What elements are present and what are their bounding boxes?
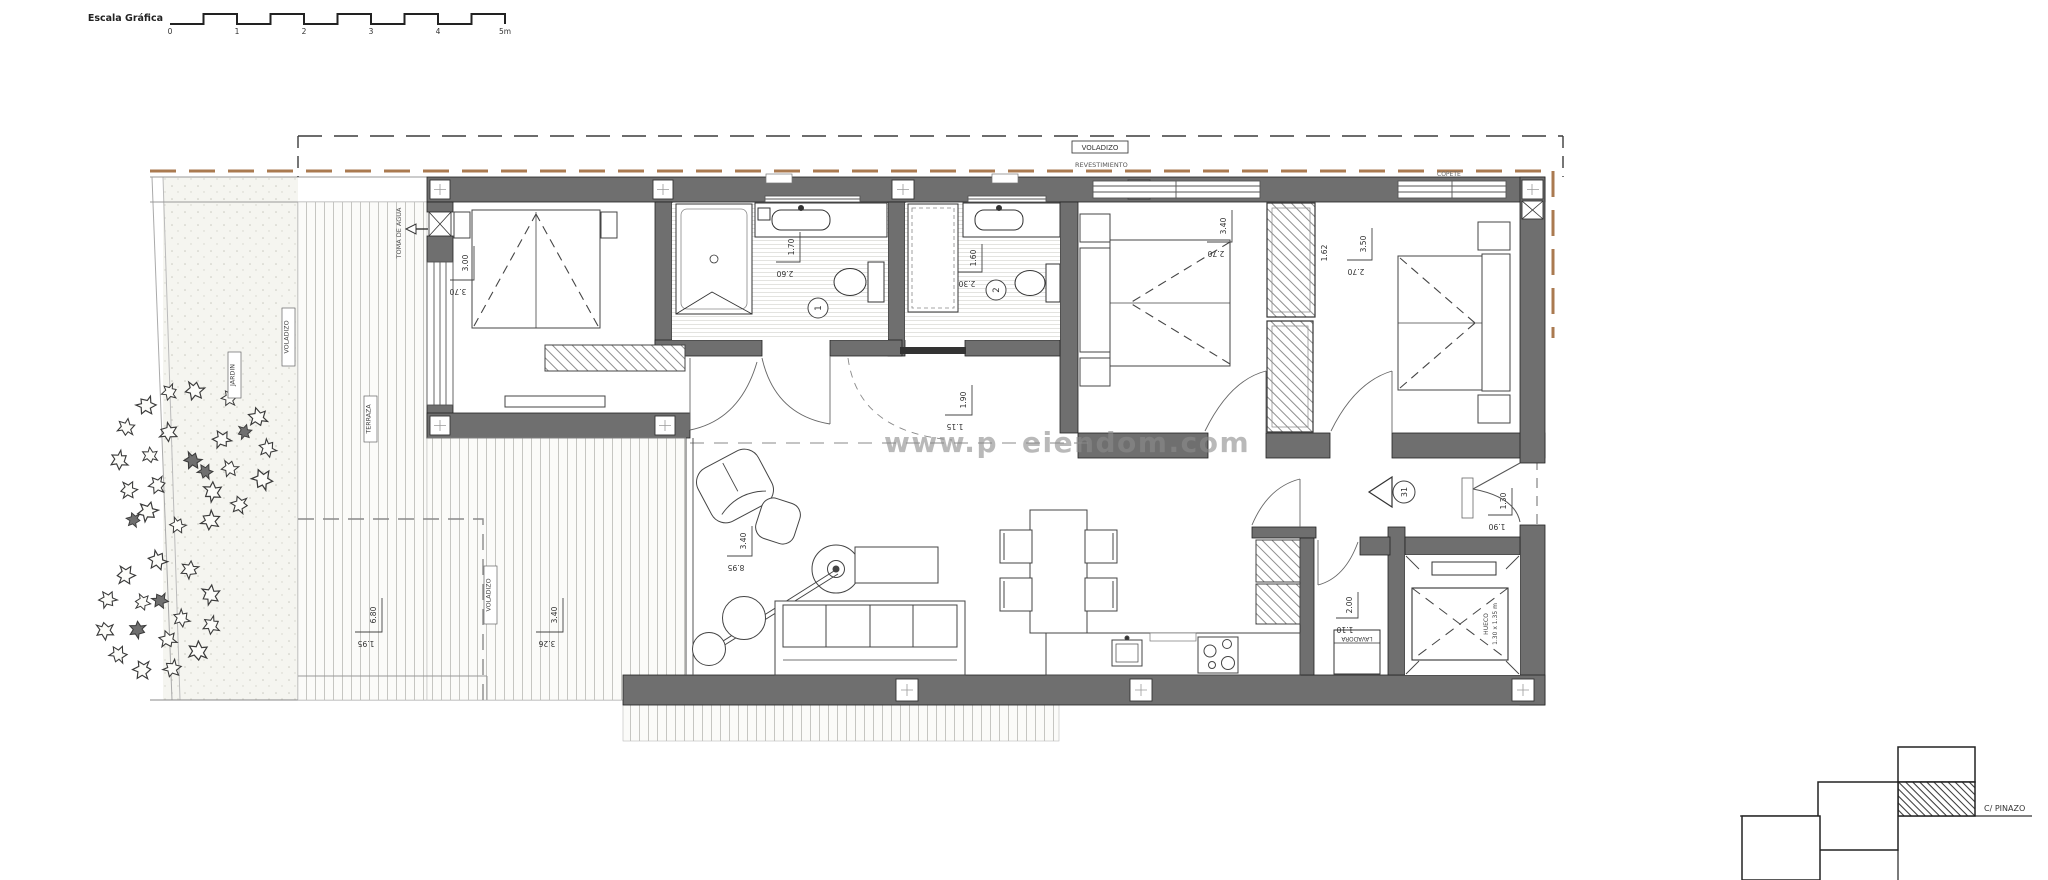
voladizo-top-label: VOLADIZO	[1082, 144, 1119, 152]
toilet-bowl	[834, 269, 866, 296]
street-label: C/ PINAZO	[1984, 804, 2025, 813]
scale-tick-2: 2	[302, 27, 307, 36]
dim-terrace-a-h: 1.95	[357, 639, 374, 648]
nightstand	[1080, 358, 1110, 386]
hob	[1198, 637, 1238, 673]
dim-bedroom3-v: 3.50	[1359, 235, 1368, 252]
voladizo-terrace-label: VOLADIZO	[486, 578, 493, 611]
jardin-label: JARDIN	[230, 364, 237, 387]
elevator-door	[1432, 562, 1496, 575]
dim-living-v: 3.40	[739, 532, 748, 549]
dining-table	[1030, 510, 1087, 633]
bath1-tag: 1	[814, 305, 824, 310]
hueco-label-2: 1.30 x 1.35 m	[1492, 603, 1499, 645]
dim-entry-v: 1.30	[1499, 492, 1508, 509]
faucet	[799, 206, 804, 211]
bedroom1-door-arc	[690, 358, 757, 430]
fridge-column	[1256, 540, 1300, 582]
scale-tick-4: 4	[436, 27, 441, 36]
floor-plan-sheet: Escala Gráfica 0 1 2 3 4 5m	[0, 0, 2048, 880]
laundry: LAVADORA 2.00 1.10	[1318, 540, 1380, 674]
dim-bedroom1-v: 3.00	[461, 254, 470, 271]
living-dim: 3.40 8.95	[727, 526, 752, 572]
nightstand	[454, 212, 470, 238]
toilet-tank	[1046, 264, 1060, 302]
dim-entry-h: 1.90	[1488, 522, 1505, 531]
hueco-label-1: HUECO	[1483, 613, 1490, 635]
entry-door	[1473, 463, 1520, 522]
nightstand	[1478, 222, 1510, 250]
wardrobes	[1267, 203, 1315, 432]
laundry-door-arc	[1318, 540, 1358, 585]
dim-bedroom3-extra: 1.62	[1320, 244, 1329, 261]
dim-bath2-v: 1.60	[969, 249, 978, 266]
dim-bath2-h: 2.30	[958, 279, 975, 288]
floor-plan-drawing: Escala Gráfica 0 1 2 3 4 5m	[0, 0, 2048, 880]
nightstand	[1080, 214, 1110, 242]
wardrobe	[1267, 203, 1315, 317]
terraza-label: TERRAZA	[366, 404, 373, 435]
dim-bath1-v: 1.70	[787, 238, 796, 255]
hall-dim: 1.90 1.15	[945, 385, 972, 431]
voladizo-garden-label: VOLADIZO	[284, 320, 291, 353]
dining-kitchen	[1000, 479, 1300, 675]
elevator: HUECO 1.30 x 1.35 m	[1405, 555, 1520, 675]
key-plan: C/ PINAZO	[1740, 747, 2032, 880]
laundry-dim: 2.00 1.10	[1336, 592, 1358, 634]
nightstand	[1478, 395, 1510, 423]
scale-tick-0: 0	[168, 27, 173, 36]
oven-column	[1256, 584, 1300, 624]
scale-tick-3: 3	[369, 27, 374, 36]
headboard	[1482, 254, 1510, 391]
dim-living-h: 8.95	[727, 563, 744, 572]
entry: 31 1.30 1.90	[1369, 463, 1520, 531]
lavadora-label: LAVADORA	[1341, 635, 1372, 641]
watermark-right: eiendom.com	[1022, 426, 1250, 459]
doormat	[1462, 478, 1473, 518]
nightstand	[601, 212, 617, 238]
hall-console	[545, 345, 685, 371]
bedroom2-door-arc	[1205, 371, 1266, 433]
bedroom-2: 3.40 2.70	[1080, 210, 1266, 433]
watermark-left: www.p	[884, 426, 998, 459]
washbasin	[772, 210, 830, 230]
wardrobe	[1267, 321, 1313, 432]
washbasin	[975, 210, 1023, 230]
dishwasher	[1150, 633, 1196, 641]
faucet	[997, 206, 1002, 211]
watermark: www.p eiendom.com	[884, 426, 1250, 459]
scale-tick-1: 1	[235, 27, 240, 36]
kitchen-door-arc	[1252, 479, 1300, 527]
dim-bath1-h: 2.60	[776, 269, 793, 278]
bathroom-1: 1.70 2.60 1	[672, 203, 888, 424]
sliding-door	[900, 347, 966, 354]
bedroom3-door-arc	[1331, 371, 1392, 433]
scale-tick-5: 5m	[499, 27, 511, 36]
round-table	[723, 597, 766, 640]
entry-arrow-icon	[1369, 477, 1392, 507]
dim-bedroom2-v: 3.40	[1219, 217, 1228, 234]
bedroom-3: 3.50 2.70 1.62	[1320, 222, 1510, 433]
round-table	[693, 633, 726, 666]
dim-laundry-v: 2.00	[1345, 596, 1354, 613]
sofa	[775, 601, 965, 675]
dim-terrace-b-v: 3.40	[550, 606, 559, 623]
sideboard	[505, 396, 605, 407]
bedroom3-dim: 3.50 2.70 1.62	[1320, 228, 1372, 276]
key-plan-unit-highlight	[1898, 782, 1975, 816]
bath1-door-arc	[762, 356, 830, 424]
dim-bedroom1-h: 3.70	[449, 287, 466, 296]
dim-bedroom3-h: 2.70	[1347, 267, 1364, 276]
toilet-tank	[868, 262, 884, 302]
scale-bar-label: Escala Gráfica	[88, 13, 163, 24]
toma-de-agua-label: TOMA DE AGUA	[395, 207, 403, 260]
scale-bar-steps	[170, 14, 505, 24]
dim-terrace-a-v: 6.80	[369, 606, 378, 623]
bath2-tag: 2	[992, 287, 1002, 292]
dim-hall-v: 1.90	[959, 391, 968, 408]
headboard	[1080, 248, 1110, 352]
dim-terrace-b-h: 3.26	[538, 639, 555, 648]
tv-sideboard	[855, 547, 938, 583]
revestimiento-label: REVESTIMIENTO	[1075, 161, 1128, 169]
dim-bedroom2-h: 2.70	[1207, 249, 1224, 258]
toilet-bowl	[1015, 271, 1045, 296]
entry-tag: 31	[1400, 487, 1409, 497]
scale-bar: Escala Gráfica 0 1 2 3 4 5m	[88, 13, 511, 36]
dim-laundry-h: 1.10	[1336, 625, 1353, 634]
